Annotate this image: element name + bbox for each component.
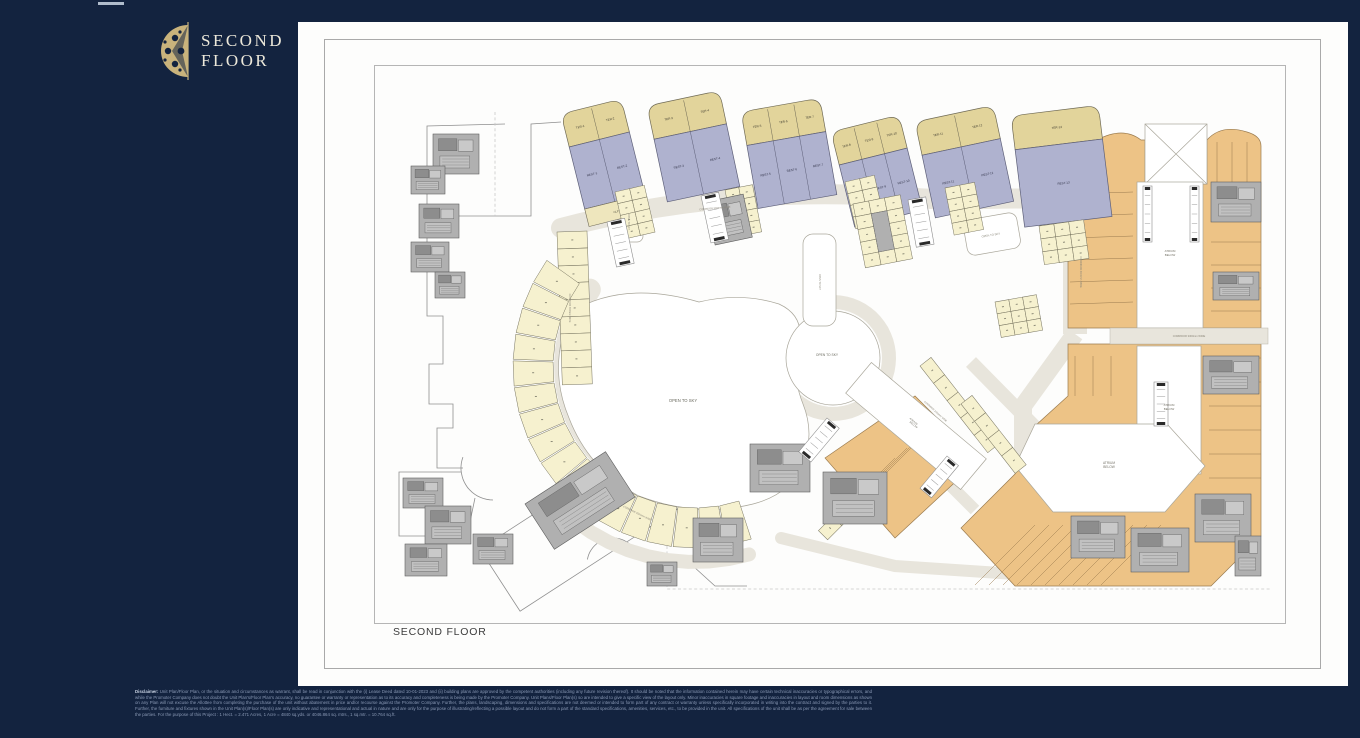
unit-number-mark — [639, 518, 641, 519]
technical-block — [693, 518, 743, 562]
unit-number-mark — [571, 239, 573, 240]
technical-block — [1195, 494, 1251, 542]
unit-number-mark — [574, 307, 576, 308]
unit-number-mark — [575, 358, 577, 359]
plan-outer-frame: TER-1TER-2REST-1REST-2CLP 1TER-3TER-4RES… — [324, 39, 1321, 669]
logo-title-line1: SECOND — [201, 31, 284, 51]
unit-cluster-3: TER-5TER-6TER-7REST-5REST-6REST-7 — [741, 98, 837, 208]
window-dash — [98, 2, 124, 5]
unit-number-mark — [662, 524, 664, 525]
technical-block — [403, 478, 443, 508]
unit-number-mark — [535, 396, 537, 397]
plan-label: OPEN TO SKY — [816, 353, 839, 357]
logo-title-line2: FLOOR — [201, 51, 284, 71]
unit-number-mark — [572, 273, 574, 274]
unit-number-mark — [545, 302, 547, 303]
technical-block — [405, 544, 447, 576]
unit-number-mark — [551, 441, 553, 442]
unit-number-mark — [563, 461, 565, 462]
shop-unit-grid — [995, 295, 1043, 338]
unit-number-mark — [541, 419, 543, 420]
technical-block — [1235, 536, 1261, 576]
floorplan-panel: TER-1TER-2REST-1REST-2CLP 1TER-3TER-4RES… — [298, 22, 1348, 686]
technical-block — [425, 506, 471, 544]
technical-block — [411, 166, 445, 194]
technical-block — [435, 272, 465, 298]
technical-block — [1211, 182, 1261, 222]
technical-block — [411, 242, 449, 272]
unit-number-mark — [533, 348, 535, 349]
plan-label: BELOW — [1164, 407, 1175, 411]
plan-shape — [513, 361, 554, 386]
technical-block — [1213, 272, 1259, 300]
page-background: SECOND FLOOR TER-1TER-2REST-1REST-2CLP 1… — [0, 0, 1360, 738]
floor-logo: SECOND FLOOR — [158, 22, 284, 80]
technical-block — [1203, 356, 1259, 394]
escalator — [1190, 186, 1199, 242]
unit-number-mark — [572, 256, 574, 257]
unit-number-mark — [574, 324, 576, 325]
technical-block — [419, 204, 459, 238]
technical-block — [1071, 516, 1125, 558]
plan-label: OPEN TO SKY — [669, 398, 697, 403]
unit-number-mark — [576, 375, 578, 376]
technical-block — [473, 534, 513, 564]
disclaimer-body: Unit Plan/Floor Plan, or the situation a… — [135, 689, 872, 717]
unit-number-mark — [556, 281, 558, 282]
plan-label: OPEN TO SKY — [818, 274, 821, 291]
plan-label: CORRIDOR 3300mm WIDE — [1173, 334, 1206, 338]
technical-block — [1131, 528, 1189, 572]
unit-number-mark — [575, 341, 577, 342]
unit-number-mark — [686, 527, 688, 528]
technical-block — [823, 472, 887, 524]
disclaimer-text: Disclaimer: Unit Plan/Floor Plan, or the… — [135, 689, 872, 717]
floor-plan-drawing: TER-1TER-2REST-1REST-2CLP 1TER-3TER-4RES… — [375, 66, 1285, 623]
plan-label: BELOW — [1103, 465, 1115, 469]
plan-label: OPEN TO SKY — [627, 214, 630, 231]
technical-block — [647, 562, 677, 586]
unit-cluster-6: TER-13REST-13 — [1011, 105, 1112, 227]
logo-ornament-icon — [158, 22, 192, 80]
plan-label: BELOW — [1165, 253, 1176, 257]
plan-label: CORRIDOR 3000mm WIDE — [568, 294, 570, 323]
plan-label: CORRIDOR 3000mm WIDE — [1079, 256, 1082, 288]
plan-inner-frame: TER-1TER-2REST-1REST-2CLP 1TER-3TER-4RES… — [374, 65, 1286, 624]
disclaimer-label: Disclaimer: — [135, 689, 158, 694]
plan-caption: SECOND FLOOR — [393, 626, 487, 638]
unit-number-mark — [537, 325, 539, 326]
unit-number-mark — [532, 372, 534, 373]
escalator — [1143, 186, 1152, 242]
unit-cluster-2: TER-3TER-4REST-3REST-4 — [647, 91, 740, 202]
